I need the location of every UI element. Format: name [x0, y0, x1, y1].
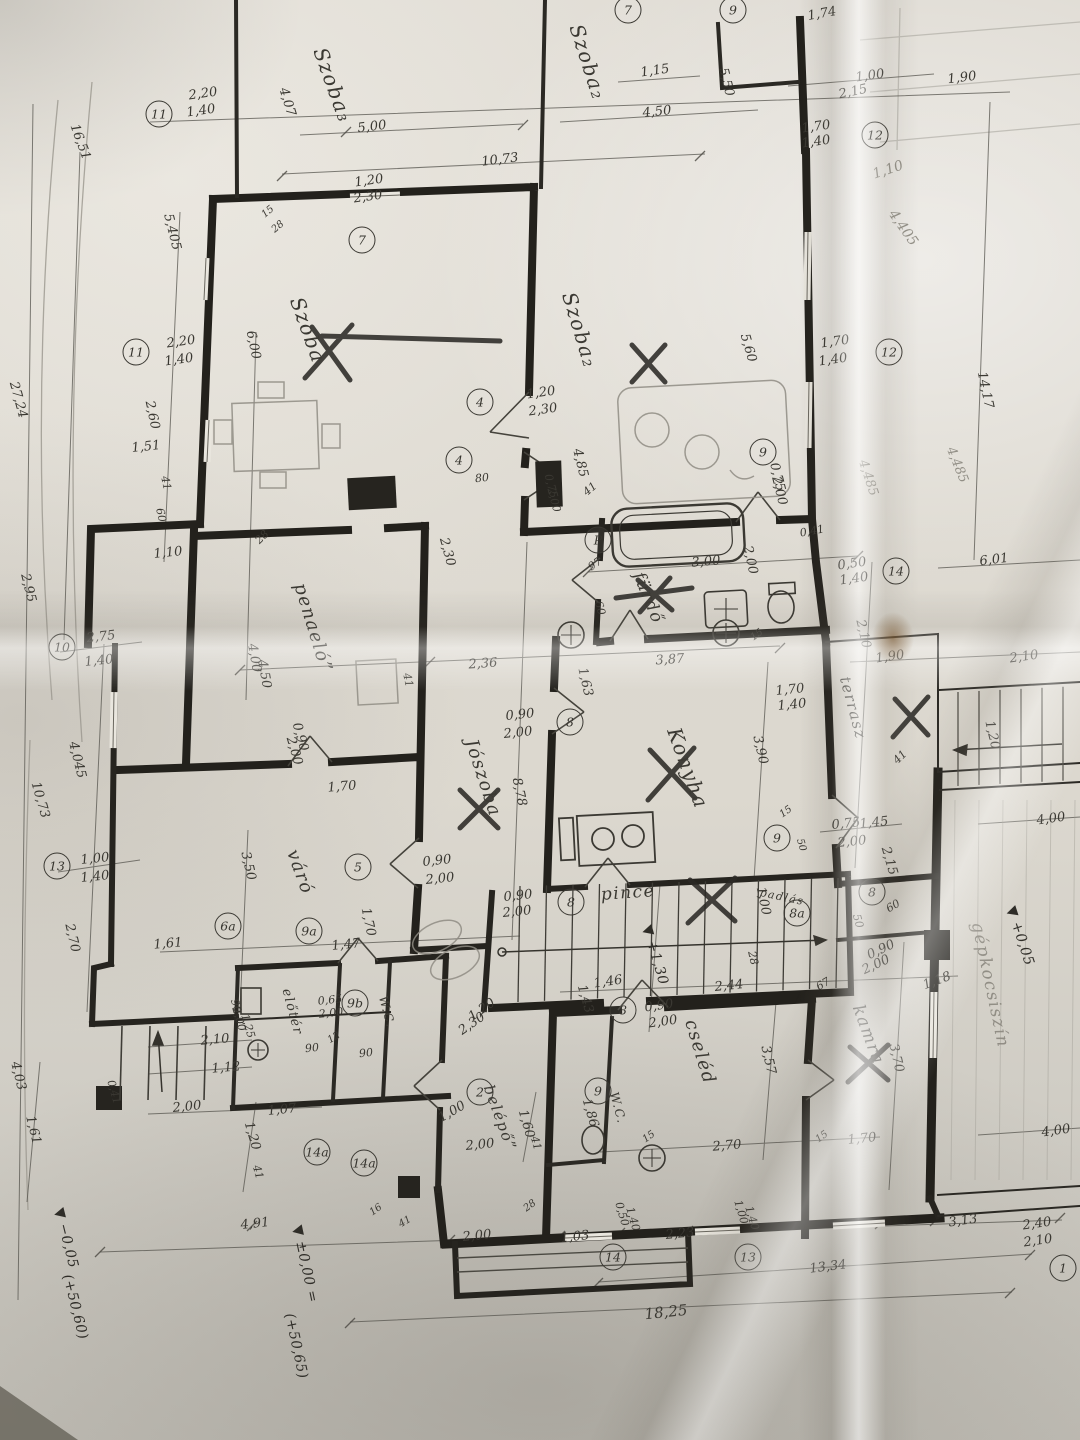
stair-arrows: [153, 744, 1062, 1092]
toilet-icon: [241, 582, 795, 1171]
cellar-stairs: [518, 878, 838, 1002]
walls-heavy: [88, 20, 940, 1244]
entry-stairs: [120, 1026, 206, 1100]
floor-plan-drawing: [0, 0, 1080, 1440]
porch-steps: [457, 1248, 688, 1272]
paper-stain: [872, 612, 914, 664]
garage-pencil-hatch: [951, 800, 1075, 1180]
flue-blocks: [96, 461, 950, 1198]
terrace-stairs: [958, 687, 1063, 786]
floor-plan-photo: Szoba₃Szoba₂SzobaSzoba₂fürdőKonyhaJószob…: [0, 0, 1080, 1440]
stove-icon: [559, 812, 655, 866]
bathtub-icon: [611, 503, 746, 568]
